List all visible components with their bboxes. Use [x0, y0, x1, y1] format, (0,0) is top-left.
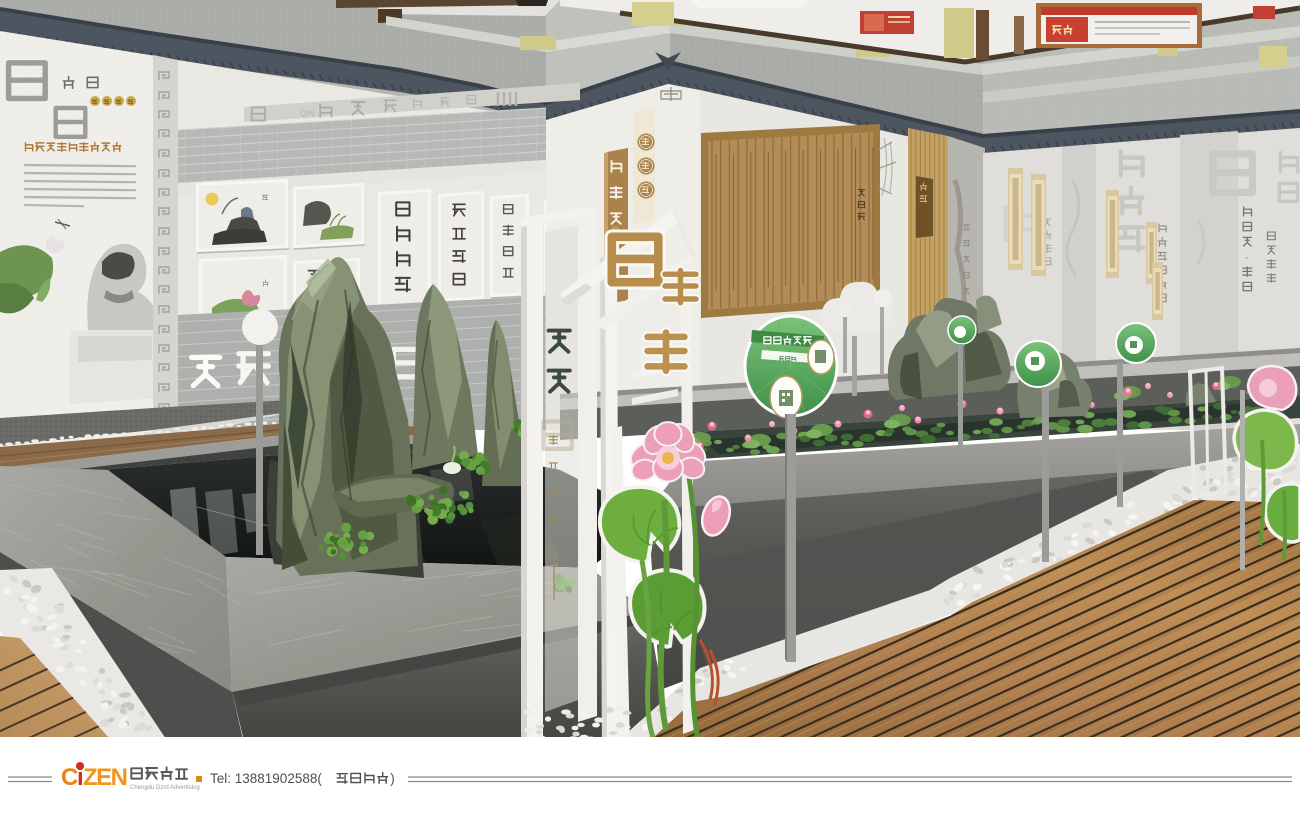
svg-text:): ) — [390, 771, 395, 786]
svg-text:Tel: 13881902588(: Tel: 13881902588( — [210, 771, 322, 786]
svg-text:ZEN: ZEN — [83, 764, 127, 791]
svg-text:Chengdu Dzrd Advertising: Chengdu Dzrd Advertising — [130, 785, 200, 791]
svg-text:·: · — [1245, 250, 1249, 264]
svg-text:QIN: QIN — [300, 109, 314, 118]
svg-text:C: C — [61, 764, 78, 791]
